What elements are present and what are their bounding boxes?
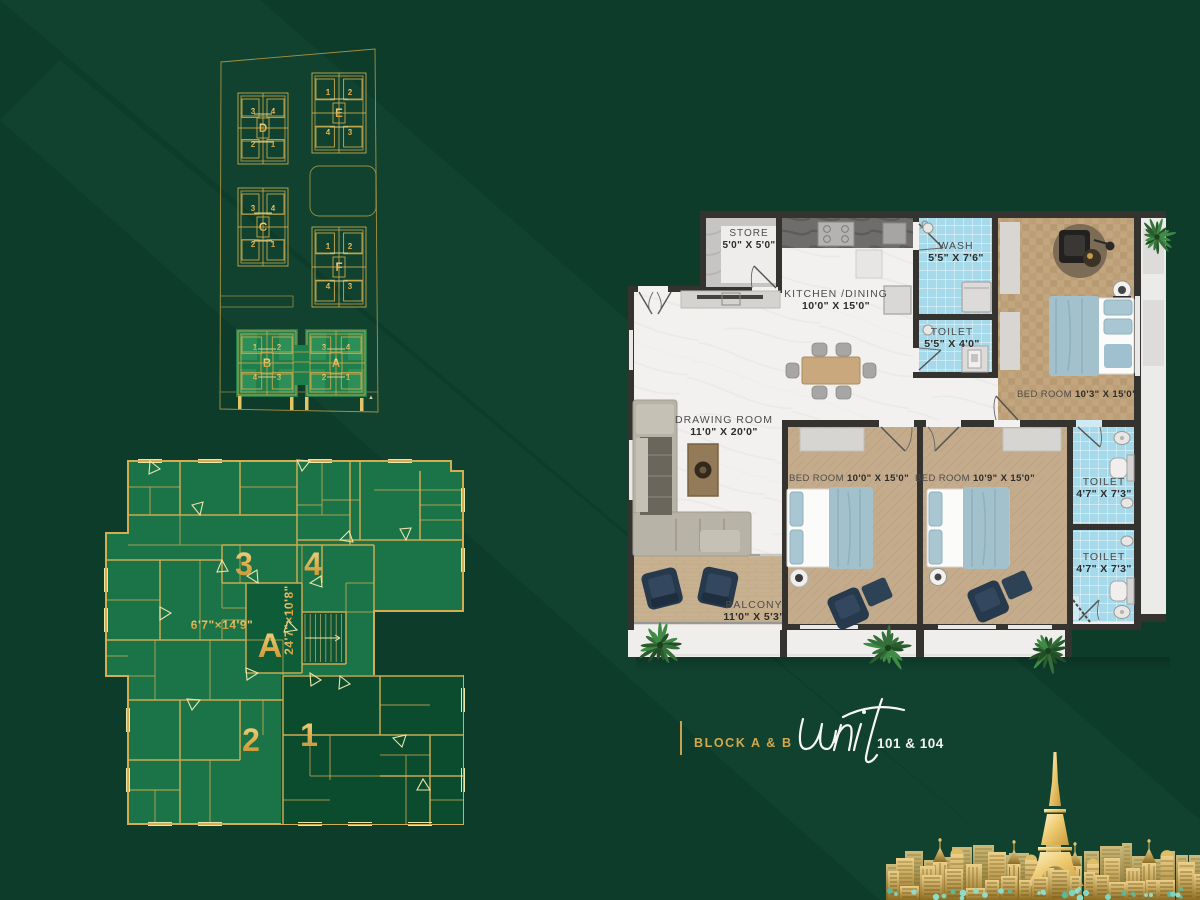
- svg-text:4: 4: [271, 107, 276, 116]
- svg-text:BLOCK A & B: BLOCK A & B: [694, 736, 793, 750]
- svg-text:1: 1: [271, 240, 276, 249]
- svg-text:3: 3: [277, 373, 282, 382]
- svg-text:2: 2: [251, 240, 256, 249]
- svg-text:DRAWING ROOM: DRAWING ROOM: [675, 414, 773, 426]
- svg-text:4: 4: [346, 343, 351, 352]
- svg-text:1: 1: [326, 88, 331, 97]
- svg-text:4: 4: [326, 128, 331, 137]
- svg-text:3: 3: [348, 282, 353, 291]
- svg-text:1: 1: [271, 140, 276, 149]
- svg-text:11'0" X 5'3": 11'0" X 5'3": [723, 611, 784, 623]
- svg-text:11'0" X 20'0": 11'0" X 20'0": [690, 426, 757, 438]
- svg-text:C: C: [259, 222, 267, 234]
- svg-text:4: 4: [271, 204, 276, 213]
- svg-text:24'7"×10'8": 24'7"×10'8": [282, 585, 296, 655]
- svg-text:5'5" X 4'0": 5'5" X 4'0": [924, 338, 980, 350]
- svg-text:BED ROOM 10'3" X 15'0": BED ROOM 10'3" X 15'0": [1017, 389, 1137, 400]
- svg-text:101 & 104: 101 & 104: [877, 736, 944, 751]
- svg-text:4'7" X 7'3": 4'7" X 7'3": [1076, 488, 1132, 500]
- svg-text:2: 2: [322, 373, 327, 382]
- svg-text:2: 2: [277, 343, 282, 352]
- svg-text:10'0" X 15'0": 10'0" X 15'0": [802, 300, 870, 312]
- svg-text:5'0" X 5'0": 5'0" X 5'0": [722, 240, 775, 251]
- svg-text:F: F: [335, 262, 342, 274]
- svg-text:BALCONY: BALCONY: [725, 599, 782, 611]
- svg-text:4: 4: [326, 282, 331, 291]
- svg-text:1: 1: [346, 373, 351, 382]
- svg-text:3: 3: [235, 546, 253, 582]
- svg-text:5'5" X 7'6": 5'5" X 7'6": [928, 252, 984, 264]
- svg-text:WASH: WASH: [938, 240, 973, 252]
- svg-text:A: A: [332, 358, 340, 370]
- svg-text:A: A: [258, 627, 283, 665]
- svg-text:2: 2: [348, 88, 353, 97]
- svg-text:6'7"×14'9": 6'7"×14'9": [191, 618, 253, 632]
- svg-text:BED ROOM 10'0" X 15'0": BED ROOM 10'0" X 15'0": [789, 473, 909, 484]
- svg-text:2: 2: [348, 242, 353, 251]
- svg-text:4: 4: [253, 373, 258, 382]
- svg-text:1: 1: [300, 717, 318, 753]
- svg-text:2: 2: [242, 722, 260, 758]
- svg-text:3: 3: [251, 107, 256, 116]
- svg-text:2: 2: [251, 140, 256, 149]
- svg-text:4'7" X 7'3": 4'7" X 7'3": [1076, 563, 1132, 575]
- svg-text:3: 3: [322, 343, 327, 352]
- svg-text:▲: ▲: [368, 395, 374, 401]
- svg-text:D: D: [259, 123, 267, 135]
- svg-text:TOILET: TOILET: [931, 326, 974, 338]
- svg-text:TOILET: TOILET: [1083, 551, 1126, 563]
- svg-text:4: 4: [304, 546, 322, 582]
- svg-text:3: 3: [251, 204, 256, 213]
- svg-text:B: B: [263, 358, 271, 370]
- svg-text:KITCHEN /DINING: KITCHEN /DINING: [784, 288, 888, 300]
- svg-text:1: 1: [326, 242, 331, 251]
- svg-text:3: 3: [348, 128, 353, 137]
- svg-text:E: E: [335, 108, 343, 120]
- svg-text:BED ROOM 10'9" X 15'0": BED ROOM 10'9" X 15'0": [915, 473, 1035, 484]
- svg-text:TOILET: TOILET: [1083, 476, 1126, 488]
- svg-text:STORE: STORE: [729, 228, 768, 239]
- svg-text:1: 1: [253, 343, 258, 352]
